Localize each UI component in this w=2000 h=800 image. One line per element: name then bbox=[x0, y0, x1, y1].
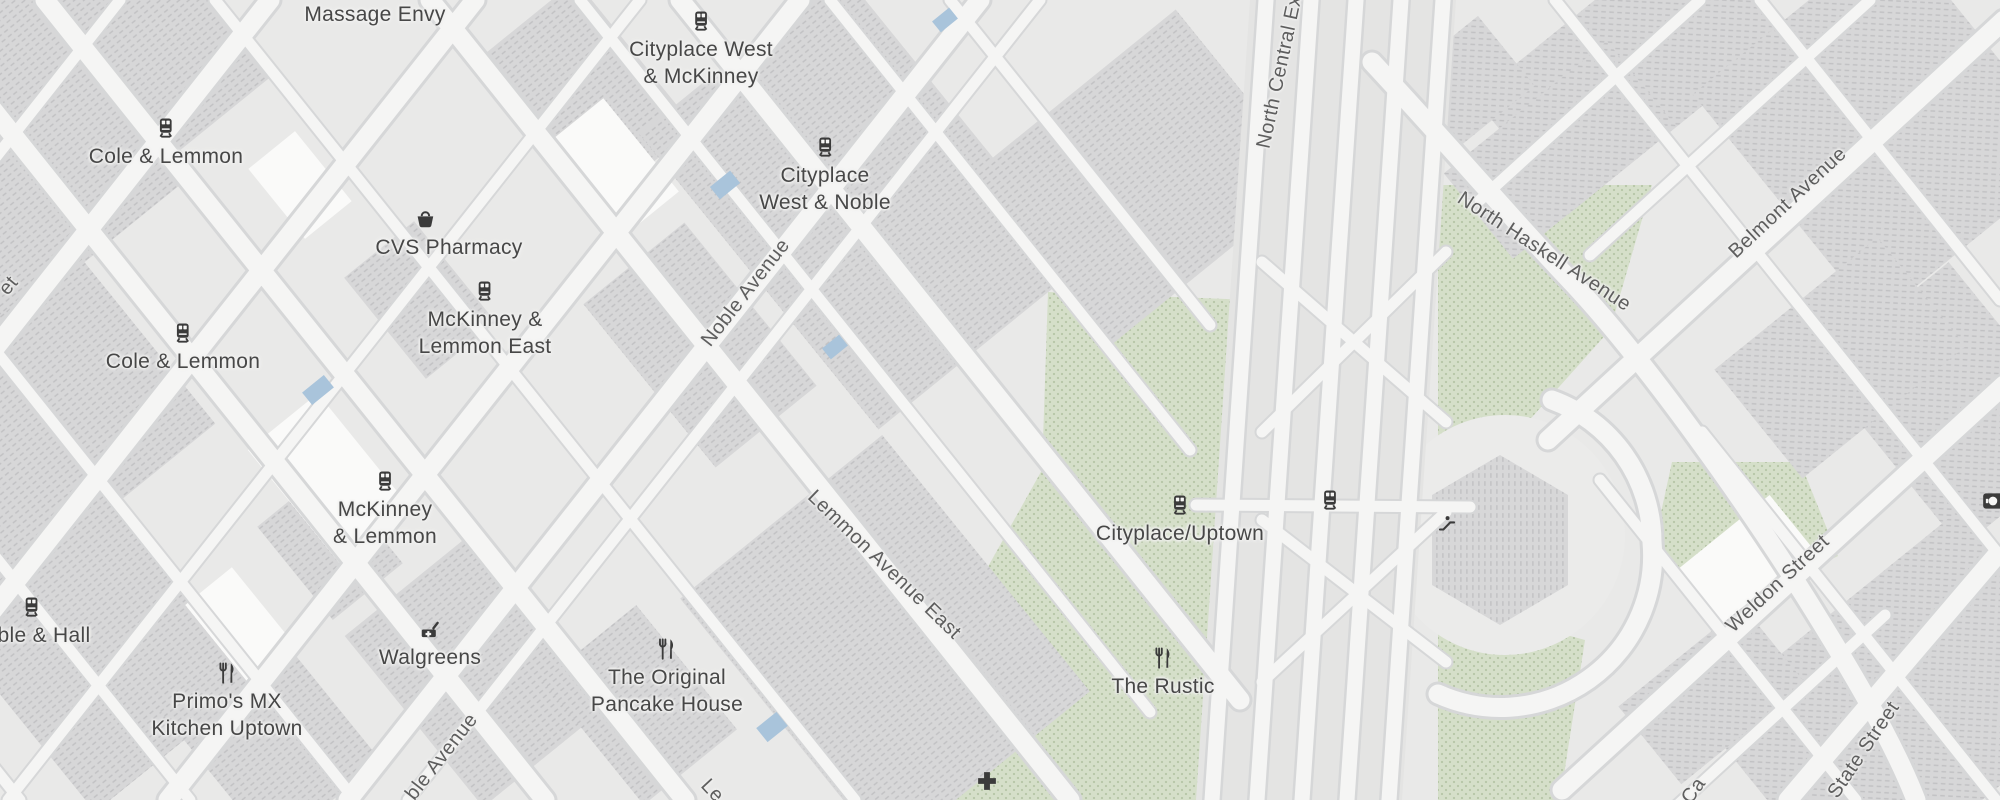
poi-label-line: Cityplace West bbox=[629, 36, 773, 63]
street-label-street-fragment-et: et bbox=[0, 272, 23, 300]
poi-label-line: Primo's MX bbox=[151, 688, 302, 715]
map-labels-layer: Massage EnvyCityplace West& McKinneyCole… bbox=[0, 0, 2000, 800]
street-label-state-street: State Street bbox=[1823, 697, 1904, 800]
poi-the-original-pancake-house[interactable]: The OriginalPancake House bbox=[591, 636, 743, 718]
poi-label-line: McKinney bbox=[333, 496, 437, 523]
escalator-icon bbox=[1434, 510, 1460, 536]
poi-walgreens[interactable]: Walgreens bbox=[379, 616, 481, 671]
poi-label-line: McKinney & bbox=[419, 306, 552, 333]
poi-label-line: Cityplace bbox=[759, 162, 891, 189]
street-label-belmont-avenue: Belmont Avenue bbox=[1724, 143, 1851, 264]
plus-icon bbox=[974, 768, 1000, 794]
poi-label-line: & McKinney bbox=[629, 63, 773, 90]
poi-cole-and-lemmon-south[interactable]: Cole & Lemmon bbox=[106, 320, 260, 375]
poi-label-line: Cole & Lemmon bbox=[89, 143, 243, 170]
tram-icon bbox=[372, 468, 398, 494]
restaurant-icon bbox=[214, 660, 240, 686]
poi-cvs-pharmacy[interactable]: CVS Pharmacy bbox=[375, 206, 522, 261]
poi-label-line: The Rustic bbox=[1111, 673, 1214, 700]
poi-massage-envy[interactable]: Massage Envy bbox=[304, 1, 445, 28]
poi-poi-cut-right-edge[interactable] bbox=[1981, 488, 2000, 516]
street-label-north-haskell-avenue: North Haskell Avenue bbox=[1453, 187, 1635, 316]
tram-icon bbox=[812, 134, 838, 160]
poi-label-line: Cole & Lemmon bbox=[106, 348, 260, 375]
poi-cityplace-uptown[interactable]: Cityplace/Uptown bbox=[1096, 492, 1264, 547]
poi-label-line: Pancake House bbox=[591, 691, 743, 718]
poi-mckinney-and-lemmon[interactable]: McKinney& Lemmon bbox=[333, 468, 437, 550]
poi-cut-icon bbox=[1981, 488, 2000, 514]
street-label-north-central-expressway: North Central Ex bbox=[1253, 0, 1308, 151]
poi-label-line: Kitchen Uptown bbox=[151, 715, 302, 742]
poi-the-rustic[interactable]: The Rustic bbox=[1111, 645, 1214, 700]
restaurant-icon bbox=[1150, 645, 1176, 671]
tram-icon bbox=[170, 320, 196, 346]
basket-icon bbox=[412, 206, 438, 232]
poi-cityplace-west-and-mckinney[interactable]: Cityplace West& McKinney bbox=[629, 8, 773, 90]
street-label-lemmon-avenue-east: Lemmon Avenue East bbox=[803, 486, 966, 644]
poi-label-line: ble & Hall bbox=[0, 622, 90, 649]
poi-label-line: & Lemmon bbox=[333, 523, 437, 550]
poi-label-line: Walgreens bbox=[379, 644, 481, 671]
poi-label-line: Massage Envy bbox=[304, 1, 445, 28]
poi-label-line: West & Noble bbox=[759, 189, 891, 216]
street-label-weldon-street: Weldon Street bbox=[1722, 530, 1835, 637]
tram-icon bbox=[1317, 487, 1343, 513]
poi-mckinney-and-lemmon-east[interactable]: McKinney &Lemmon East bbox=[419, 278, 552, 360]
poi-station-escalator[interactable] bbox=[1434, 510, 1460, 538]
tram-icon bbox=[19, 594, 45, 620]
tram-icon bbox=[153, 115, 179, 141]
tram-icon bbox=[472, 278, 498, 304]
poi-cole-and-lemmon-north[interactable]: Cole & Lemmon bbox=[89, 115, 243, 170]
restaurant-icon bbox=[654, 636, 680, 662]
street-label-lemmon-fragment: Le bbox=[696, 775, 729, 800]
street-label-noble-avenue-south: ble Avenue bbox=[401, 709, 483, 800]
poi-label-line: The Original bbox=[591, 664, 743, 691]
poi-cityplace-station[interactable] bbox=[1317, 487, 1343, 515]
poi-primos-mx-kitchen-uptown[interactable]: Primo's MXKitchen Uptown bbox=[151, 660, 302, 742]
map-canvas[interactable]: Massage EnvyCityplace West& McKinneyCole… bbox=[0, 0, 2000, 800]
poi-label-line: Lemmon East bbox=[419, 333, 552, 360]
street-label-street-fragment-ca: Ca bbox=[1677, 774, 1711, 800]
poi-label-line: Cityplace/Uptown bbox=[1096, 520, 1264, 547]
poi-hospital[interactable] bbox=[974, 768, 1000, 796]
pharmacy-icon bbox=[417, 616, 443, 642]
tram-icon bbox=[1167, 492, 1193, 518]
poi-label-line: CVS Pharmacy bbox=[375, 234, 522, 261]
poi-cityplace-west-and-noble[interactable]: CityplaceWest & Noble bbox=[759, 134, 891, 216]
street-label-noble-avenue: Noble Avenue bbox=[697, 235, 795, 352]
poi-noble-and-hall[interactable]: ble & Hall bbox=[0, 594, 90, 649]
tram-icon bbox=[688, 8, 714, 34]
